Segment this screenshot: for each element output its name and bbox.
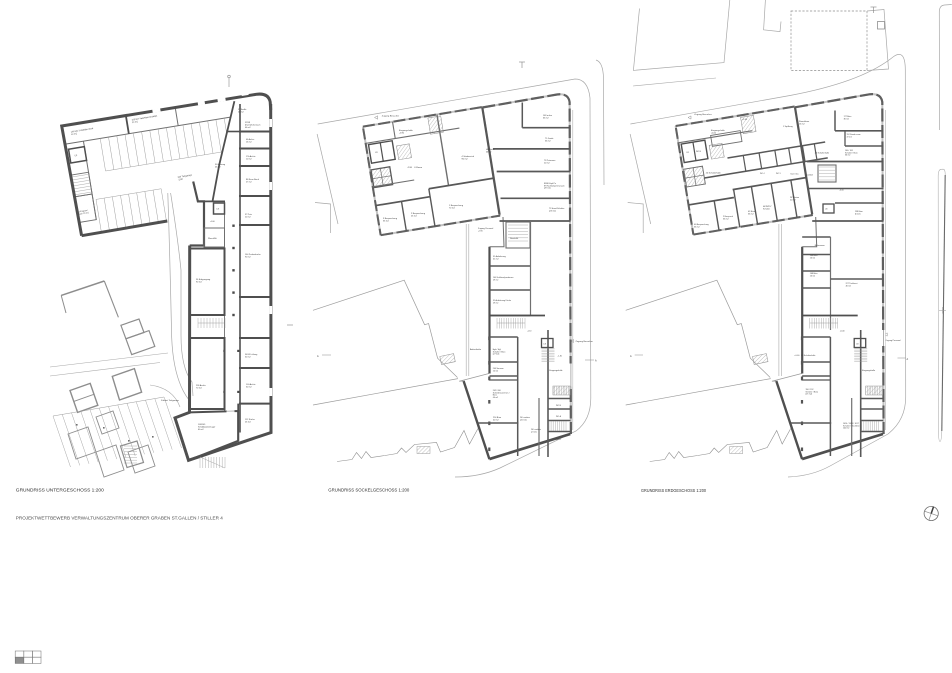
svg-text:Eingangshalle: Eingangshalle [862,370,876,372]
svg-text:294 Büro40 m2: 294 Büro40 m2 [493,417,502,421]
svg-text:Zugang Besucher: Zugang Besucher [576,340,594,343]
svg-text:GRUNDRISS ERDGESCHOSS 1:200: GRUNDRISS ERDGESCHOSS 1:200 [641,488,706,493]
svg-text:PROJEKTWETTBEWERB VERWALTUNGSZ: PROJEKTWETTBEWERB VERWALTUNGSZENTRUM OBE… [16,515,223,521]
svg-text:WC B: WC B [556,405,562,407]
svg-text:160/161 Umkleide+Gard.40 m2: 160/161 Umkleide+Gard.40 m2 [71,127,95,136]
svg-text:24 Schalterhalle: 24 Schalterhalle [706,172,722,175]
svg-text:100 Archiv30 m2: 100 Archiv30 m2 [246,383,255,388]
svg-text:91 Anlieferung41 m2: 91 Anlieferung41 m2 [493,255,506,260]
svg-text:A: A [630,355,632,358]
svg-text:GRUNDRISS UNTERGESCHOSS 1:200: GRUNDRISS UNTERGESCHOSS 1:200 [16,487,105,492]
svg-text:46 Archiv16 m2: 46 Archiv16 m2 [246,138,254,143]
svg-text:Zugang Personal-2.90: Zugang Personal-2.90 [478,228,494,232]
svg-text:Eingangshalle: Eingangshalle [549,370,563,372]
svg-text:94/95 Lüftung30 m2: 94/95 Lüftung30 m2 [245,353,257,358]
svg-text:28 Warten20 m2: 28 Warten20 m2 [790,196,799,201]
svg-text:105/107 Velo/Moto Abstellpl.30: 105/107 Velo/Moto Abstellpl.30 m2 [131,114,158,124]
svg-text:GRUNDRISS SOCKELGESCHOSS 1:200: GRUNDRISS SOCKELGESCHOSS 1:200 [328,487,409,492]
svg-text:1 Spülberg: 1 Spülberg [783,126,793,128]
svg-text:73 Putzraum20 m2: 73 Putzraum20 m2 [544,159,556,164]
svg-text:Wasch/lift: Wasch/lift [510,237,519,240]
svg-text:3 Besprechung36 m2: 3 Besprechung36 m2 [383,217,398,223]
svg-text:-1.10: -1.10 [527,331,531,333]
svg-text:+0.00: +0.00 [840,331,845,333]
svg-text:Lift: Lift [856,343,859,346]
svg-text:Ruandlsum16 m2: Ruandlsum16 m2 [799,121,809,125]
svg-text:238 Büro(6 m2): 238 Büro(6 m2) [855,210,863,215]
svg-text:148 m.bar66 m2: 148 m.bar66 m2 [543,115,552,119]
svg-text:148 Büro16 m2: 148 Büro16 m2 [810,254,818,259]
svg-text:17b Archiv10 m2: 17b Archiv10 m2 [246,155,255,160]
svg-text:+0.00 20 Schalterhalle: +0.00 20 Schalterhalle [794,354,816,357]
svg-text:J10 Agnes/Buch 20 m2: J10 Agnes/Buch 20 m2 [78,209,90,216]
svg-text:Kann Chu: Kann Chu [791,174,799,176]
svg-text:71 Garde36 m2: 71 Garde36 m2 [545,138,554,142]
svg-text:37 Putz20 m2: 37 Putz20 m2 [245,213,252,218]
svg-text:20 Lavabos(41 m2): 20 Lavabos(41 m2) [520,417,530,421]
svg-text:-1.40: -1.40 [558,356,562,358]
svg-text:-4.00: -4.00 [210,221,215,223]
svg-text:Zugang Besucher: Zugang Besucher [694,113,712,116]
svg-text:85/86 Kapl.Pe87 Hochkompetenzr: 85/86 Kapl.Pe87 Hochkompetenzraum(29 m2) [544,183,565,190]
svg-text:164 Zunkerbuche90 m2: 164 Zunkerbuche90 m2 [245,254,261,258]
svg-text:40 Besprechung36 m2: 40 Besprechung36 m2 [694,224,709,228]
svg-text:Aufenthalte: Aufenthalte [470,348,482,351]
svg-text:152 Sende raum72 m2: 152 Sende raum72 m2 [847,133,861,138]
svg-text:150 Tiefgarage-2.80: 150 Tiefgarage-2.80 [177,173,193,181]
svg-text:227 Tischlerei46 m2: 227 Tischlerei46 m2 [846,282,858,287]
svg-text:57 Sedile20 m2: 57 Sedile20 m2 [238,109,247,113]
svg-text:A: A [317,355,319,358]
svg-text:112 Küche26 m2: 112 Küche26 m2 [245,419,256,424]
svg-text:Zufahrt Tiefgarage: Zufahrt Tiefgarage [161,399,180,402]
svg-text:202 / 206Schreibmaschinen /Bür: 202 / 206Schreibmaschinen /Büro44 m2 [493,390,510,399]
svg-text:Wasch/lift: Wasch/lift [208,237,217,240]
svg-text:Zugang Personal: Zugang Personal [885,340,901,342]
svg-text:236 Archiv70 m2: 236 Archiv70 m2 [196,384,207,390]
svg-text:A: A [907,358,909,361]
svg-text:WC 3: WC 3 [776,173,781,175]
svg-text:Lift: Lift [217,208,220,211]
svg-text:-0.00: -0.00 [839,190,843,192]
svg-text:LR: LR [375,152,378,154]
svg-text:72 Hand Schalter(23 m2): 72 Hand Schalter(23 m2) [549,207,565,212]
svg-text:A: A [595,360,597,363]
svg-text:Lift: Lift [825,208,828,211]
svg-text:41 Büro36 m2: 41 Büro36 m2 [748,211,756,215]
svg-text:91 Anlieferung Küche29 m2: 91 Anlieferung Küche29 m2 [493,299,511,304]
svg-text:200 Vorraum10 m2: 200 Vorraum10 m2 [493,367,504,372]
svg-text:LR: LR [75,155,78,157]
svg-text:+2.05: +2.05 [742,119,748,121]
svg-text:Lift: Lift [544,343,547,346]
svg-text:Hgb / HglSchalter / Büro(27 m2: Hgb / HglSchalter / Büro(27 m2) [493,349,506,356]
svg-text:WC D: WC D [556,439,562,441]
svg-text:168 Büro16 m2: 168 Büro16 m2 [810,272,818,277]
svg-text:WC 4: WC 4 [760,173,765,175]
svg-text:2 Besprech36 m2: 2 Besprech36 m2 [723,216,733,220]
svg-text:40/78/157Schalter: 40/78/157Schalter [763,206,771,210]
svg-text:HB Küche46 m2: HB Küche46 m2 [486,149,495,153]
svg-text:LR: LR [687,152,690,154]
svg-text:90 Heizung46 m2: 90 Heizung46 m2 [215,164,225,168]
svg-text:Zugang Besucher: Zugang Besucher [382,115,400,118]
svg-text:Eingangshalle-2.90: Eingangshalle-2.90 [399,130,414,135]
svg-text:108/109Schddeponie/Lager60 m2: 108/109Schddeponie/Lager60 m2 [198,424,216,431]
svg-text:177 Büro36 m2: 177 Büro36 m2 [844,115,852,120]
svg-text:86 Neue Beruf27 m2: 86 Neue Beruf27 m2 [246,179,259,183]
svg-text:Nebenraum: Nebenraum [815,244,825,247]
svg-text:96 Erbgungong90 m2: 96 Erbgungong90 m2 [196,278,211,284]
svg-text:160 / 161Schalter / Büro36 m2: 160 / 161Schalter / Büro36 m2 [845,150,858,157]
svg-text:1 Besprechung70 m2: 1 Besprechung70 m2 [449,204,464,210]
svg-text:WC B: WC B [696,151,702,153]
svg-text:-2.90 6 Raum: -2.90 6 Raum [407,167,422,169]
svg-text:190 / 192Schalter / Büro(27 m2: 190 / 192Schalter / Büro(27 m2) [806,389,819,396]
svg-text:140 Schlüsselpositionen29 m2: 140 Schlüsselpositionen29 m2 [493,276,513,281]
svg-text:52/98(Karin)/Chorraum46 m2: 52/98(Karin)/Chorraum46 m2 [245,122,261,129]
svg-text:WC A: WC A [556,415,562,418]
svg-text:2 Besprechung26 m2: 2 Besprechung26 m2 [411,212,426,218]
svg-text:24 Schalterhalle: 24 Schalterhalle [815,152,830,155]
svg-text:Lümbel: Lümbel [807,175,813,177]
svg-text:4 Sitzbereich90 m2: 4 Sitzbereich90 m2 [462,155,475,161]
